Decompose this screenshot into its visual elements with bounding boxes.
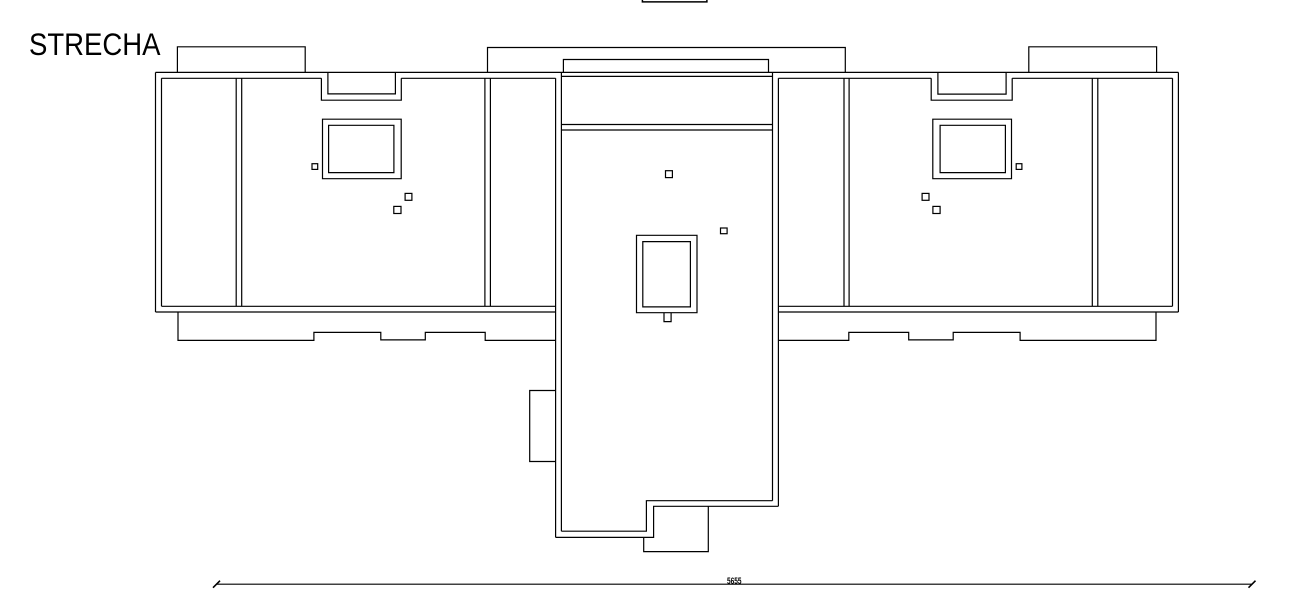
svg-text:STRECHA: STRECHA	[29, 26, 161, 62]
svg-text:5655: 5655	[727, 576, 742, 586]
